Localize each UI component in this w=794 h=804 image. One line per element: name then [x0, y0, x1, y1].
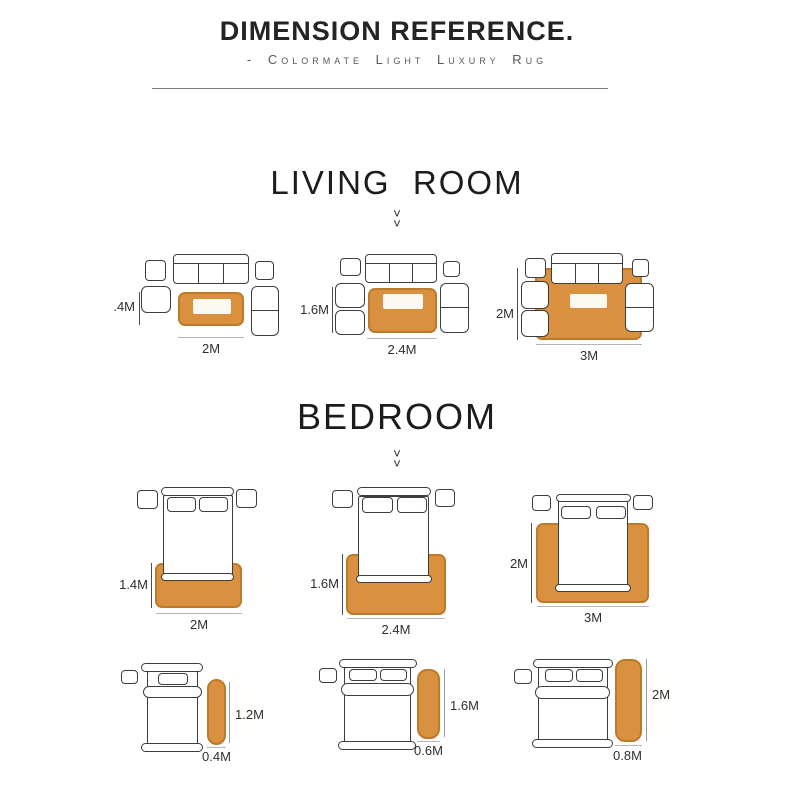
width-dimension-line — [347, 618, 445, 619]
nightstand — [121, 670, 138, 684]
runner-rug — [417, 669, 440, 739]
nightstand — [319, 668, 337, 683]
nightstand — [435, 489, 455, 507]
living-room-layout-1: .4M 2M — [105, 242, 305, 364]
bed-headboard — [533, 659, 613, 668]
side-table — [525, 258, 546, 278]
height-dimension-line — [332, 287, 333, 333]
width-dimension-line — [367, 338, 437, 339]
bedroom-layout-2: 1.6M 2.4M — [300, 480, 490, 640]
rug-width-label: 2.4M — [347, 622, 445, 637]
bed-headboard — [357, 487, 431, 496]
page-subtitle: - Colormate Light Luxury Rug — [0, 52, 794, 67]
divider-line — [152, 88, 608, 89]
width-dimension-line — [156, 613, 242, 614]
bed-footboard — [161, 573, 234, 581]
pillow — [362, 497, 393, 513]
pillow — [545, 669, 573, 682]
bed-headboard — [339, 659, 417, 668]
runner-width-label: 0.8M — [613, 748, 642, 763]
runner-width-label: 0.4M — [202, 749, 231, 764]
rug-width-label: 3M — [537, 610, 649, 625]
rug-height-label: .4M — [105, 299, 135, 314]
bedroom-layout-3: 2M 3M — [500, 480, 690, 630]
bed-headboard — [161, 487, 234, 496]
width-dimension-line — [536, 344, 642, 345]
pillow — [576, 669, 603, 682]
duvet-fold — [143, 686, 202, 698]
armchair — [625, 283, 654, 332]
rug-width-label: 2M — [178, 341, 244, 356]
double-down-chevron-icon: ˅ ˅ — [0, 209, 794, 229]
sofa-cushion-divider — [198, 263, 199, 283]
rug-width-label: 3M — [536, 348, 642, 363]
sofa-backrest-line — [174, 263, 248, 264]
side-table — [340, 258, 361, 276]
coffee-table — [383, 294, 423, 309]
rug-width-label: 2.4M — [367, 342, 437, 357]
sofa — [365, 254, 437, 283]
nightstand — [236, 489, 257, 508]
height-dimension-line — [229, 682, 230, 743]
sofa-cushion-divider — [412, 263, 413, 282]
coffee-table — [193, 299, 231, 314]
height-dimension-line — [151, 563, 152, 608]
rug-height-label: 1.6M — [304, 576, 339, 591]
living-room-layout-3: 2M 3M — [490, 235, 690, 370]
bed-headboard — [556, 494, 631, 502]
bed-footboard — [141, 743, 203, 752]
runner-rug — [207, 679, 226, 745]
nightstand — [514, 669, 532, 684]
sofa-cushion-divider — [389, 263, 390, 282]
armchair — [521, 310, 549, 337]
width-dimension-line — [537, 606, 649, 607]
height-dimension-line — [531, 523, 532, 603]
bed-footboard — [555, 584, 631, 592]
pillow — [380, 669, 407, 681]
height-dimension-line — [646, 659, 647, 741]
rug-height-label: 2M — [507, 556, 528, 571]
height-dimension-line — [517, 268, 518, 340]
coffee-table — [570, 294, 607, 308]
nightstand — [137, 490, 158, 509]
pillow — [158, 673, 188, 685]
pillow — [561, 506, 591, 519]
bedroom-layout-1: 1.4M 2M — [110, 480, 300, 630]
bedside-runner-layout-3: 2M 0.8M — [500, 640, 700, 790]
sofa-cushion-divider — [223, 263, 224, 283]
runner-height-label: 1.2M — [235, 707, 264, 722]
pillow — [596, 506, 626, 519]
armchair — [335, 310, 365, 335]
pillow — [397, 497, 427, 513]
bed-footboard — [356, 575, 432, 583]
duvet-fold — [535, 686, 610, 699]
armchair — [335, 283, 365, 308]
rug-height-label: 2M — [492, 306, 514, 321]
sofa — [551, 253, 623, 284]
nightstand — [332, 490, 353, 508]
pillow — [199, 497, 228, 512]
bedside-runner-layout-2: 1.6M 0.6M — [310, 650, 510, 790]
sofa — [173, 254, 249, 284]
bedside-runner-layout-1: 1.2M 0.4M — [100, 650, 300, 790]
width-dimension-line — [417, 741, 440, 742]
double-down-chevron-icon: ˅ ˅ — [0, 449, 794, 469]
side-table — [632, 259, 649, 277]
runner-width-label: 0.6M — [414, 743, 443, 758]
width-dimension-line — [207, 747, 226, 748]
height-dimension-line — [342, 554, 343, 615]
bed-footboard — [532, 739, 613, 748]
page-title: DIMENSION REFERENCE. — [0, 16, 794, 47]
armchair — [251, 286, 279, 336]
runner-height-label: 2M — [652, 687, 670, 702]
living-room-layout-2: 1.6M 2.4M — [300, 240, 495, 370]
armchair — [440, 283, 469, 333]
pillow — [167, 497, 196, 512]
sofa-cushion-divider — [575, 263, 576, 283]
sofa-backrest-line — [366, 263, 436, 264]
section-title-living-room: LIVING ROOM — [0, 164, 794, 202]
bed-headboard — [141, 663, 203, 672]
rug-width-label: 2M — [156, 617, 242, 632]
sofa-backrest-line — [552, 263, 622, 264]
section-title-bedroom: BEDROOM — [0, 396, 794, 438]
bed-footboard — [338, 741, 416, 750]
rug-height-label: 1.4M — [115, 577, 148, 592]
rug-height-label: 1.6M — [300, 302, 329, 317]
height-dimension-line — [444, 669, 445, 737]
nightstand — [532, 495, 551, 511]
runner-height-label: 1.6M — [450, 698, 479, 713]
nightstand — [633, 495, 653, 510]
armchair — [141, 286, 171, 313]
width-dimension-line — [615, 745, 642, 746]
pillow — [349, 669, 377, 681]
side-table — [145, 260, 166, 281]
height-dimension-line — [139, 292, 140, 325]
runner-rug — [615, 659, 642, 742]
side-table — [443, 261, 460, 277]
sofa-cushion-divider — [598, 263, 599, 283]
duvet-fold — [341, 683, 414, 696]
dimension-reference-infographic: DIMENSION REFERENCE. - Colormate Light L… — [0, 0, 794, 804]
armchair — [521, 281, 549, 309]
side-table — [255, 261, 274, 280]
width-dimension-line — [178, 337, 244, 338]
